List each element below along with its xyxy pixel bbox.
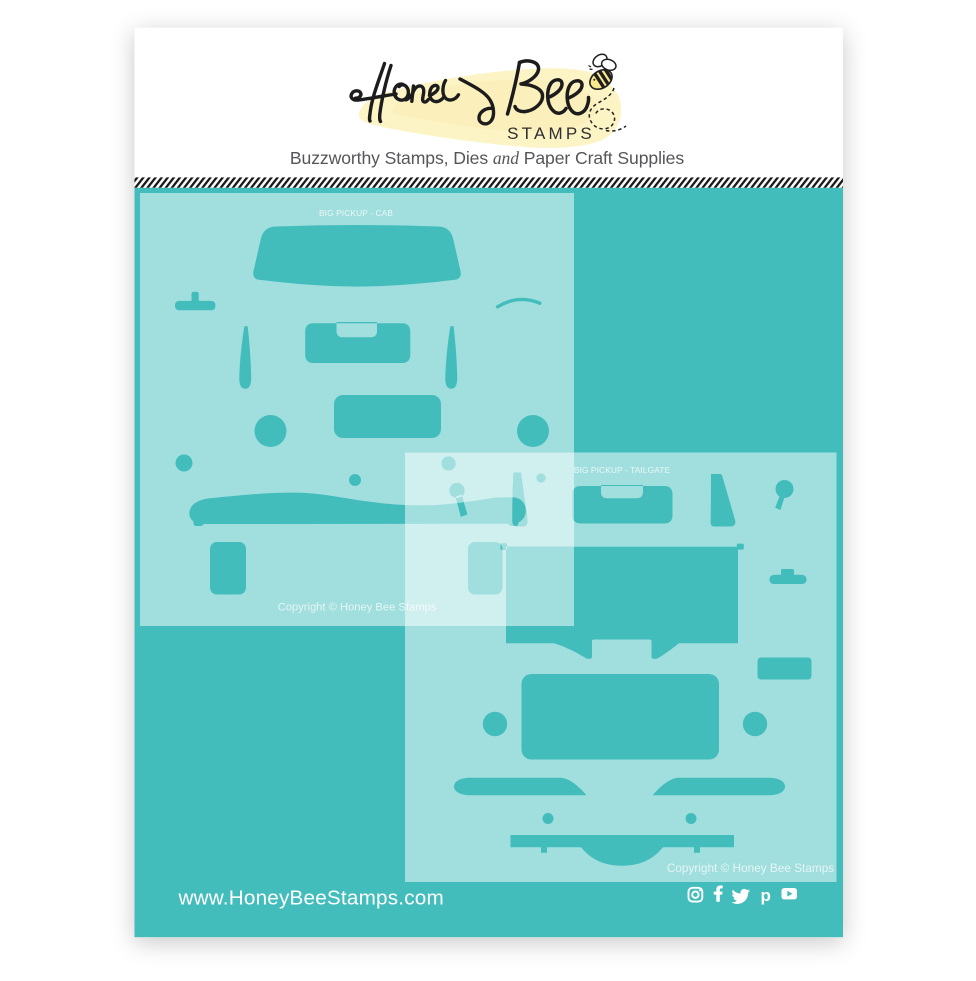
svg-text:Copyright © Honey Bee Stamps: Copyright © Honey Bee Stamps (667, 861, 834, 875)
svg-text:www.HoneyBeeStamps.com: www.HoneyBeeStamps.com (178, 887, 444, 910)
svg-text:p: p (761, 886, 771, 905)
svg-text:Buzzworthy Stamps, Dies and Pa: Buzzworthy Stamps, Dies and Paper Craft … (290, 148, 684, 168)
svg-text:BIG PICKUP - TAILGATE: BIG PICKUP - TAILGATE (574, 465, 671, 475)
svg-text:BIG PICKUP - CAB: BIG PICKUP - CAB (319, 208, 393, 218)
svg-text:STAMPS: STAMPS (507, 124, 595, 143)
